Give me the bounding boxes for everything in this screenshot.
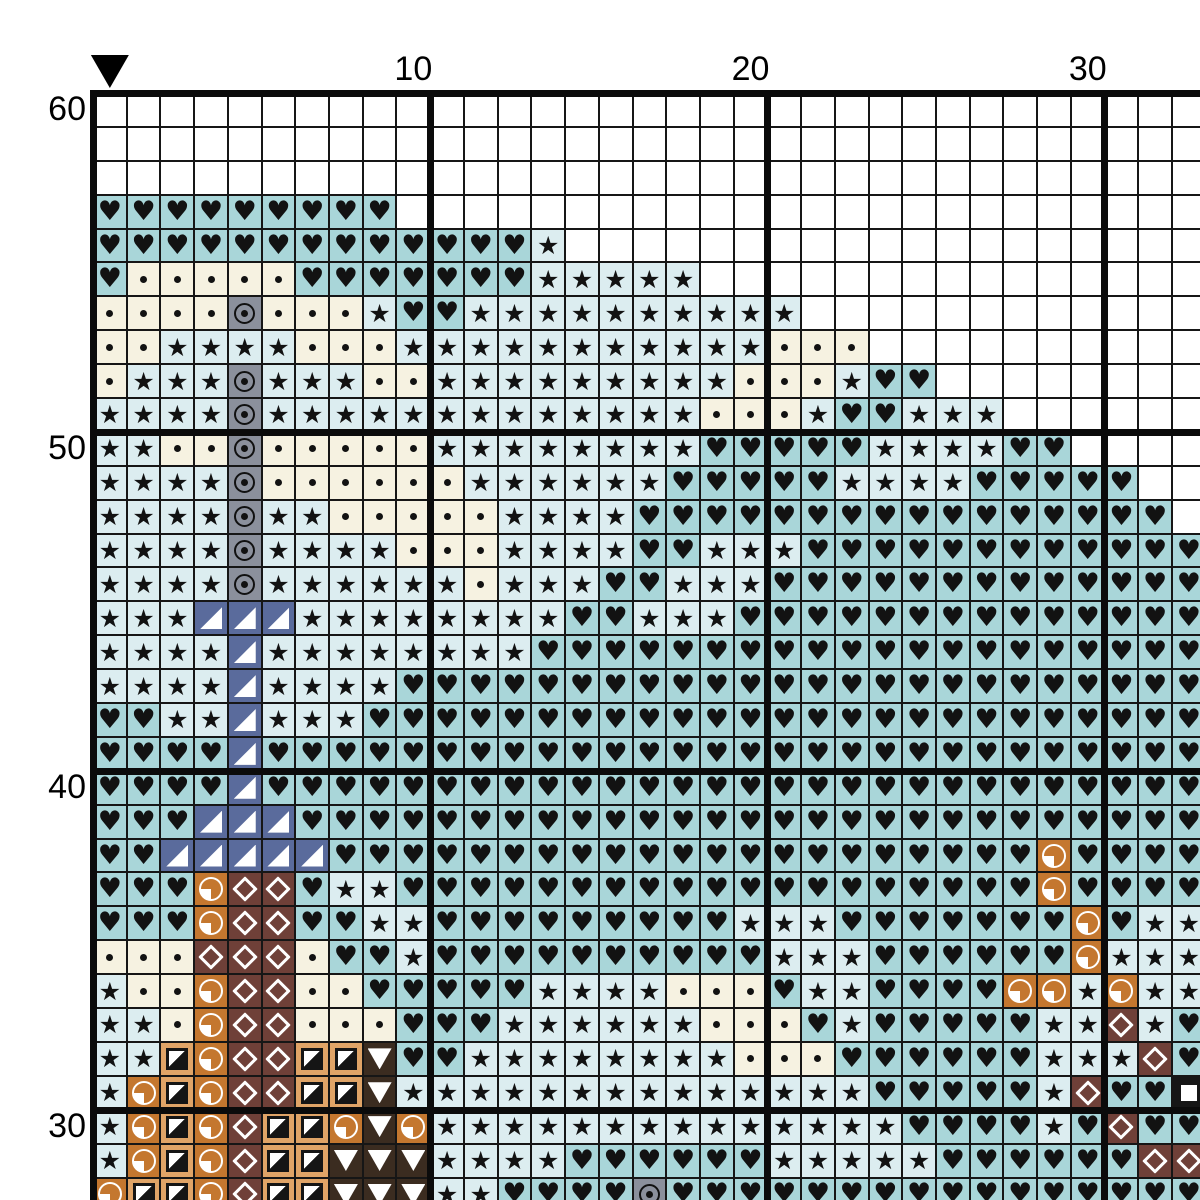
grid-cell-dot [329, 296, 363, 330]
star-icon: ★ [942, 433, 964, 464]
grid-cell-dot [363, 432, 397, 466]
grid-cell-star: ★ [160, 534, 194, 568]
grid-cell-star: ★ [1105, 1042, 1139, 1076]
star-icon: ★ [1043, 1111, 1065, 1142]
heart-icon: ♥ [469, 230, 493, 261]
heart-icon: ♥ [840, 433, 864, 464]
grid-cell-heart: ♥ [801, 567, 835, 601]
grid-cell-dot [464, 567, 498, 601]
star-icon: ★ [672, 433, 694, 464]
heart-icon: ♥ [974, 1077, 998, 1108]
grid-cell-star: ★ [464, 296, 498, 330]
quarter-circle-icon [1008, 979, 1032, 1003]
heart-icon: ♥ [1076, 535, 1100, 566]
grid-cell-diamond [262, 872, 296, 906]
star-icon: ★ [368, 603, 390, 634]
heart-icon: ♥ [570, 1145, 594, 1176]
dot-icon [174, 1021, 181, 1028]
star-icon: ★ [200, 467, 222, 498]
star-icon: ★ [436, 366, 458, 397]
heart-icon: ♥ [941, 704, 965, 735]
grid-cell-quarter-circle [194, 1144, 228, 1178]
dot-icon [713, 988, 720, 995]
heart-icon: ♥ [671, 840, 695, 871]
diamond-icon [232, 1080, 257, 1105]
grid-cell-empty [329, 127, 363, 161]
heart-icon: ♥ [1177, 873, 1200, 904]
grid-cell-star: ★ [396, 906, 430, 940]
grid-cell-heart: ♥ [599, 669, 633, 703]
grid-cell-heart: ♥ [531, 635, 565, 669]
grid-cell-diamond [228, 1076, 262, 1110]
heart-icon: ♥ [974, 467, 998, 498]
grid-cell-star: ★ [127, 500, 161, 534]
grid-cell-circled-dot [228, 432, 262, 466]
grid-cell-heart: ♥ [1172, 805, 1200, 839]
grid-cell-triangle-corner [228, 601, 262, 635]
grid-cell-heart: ♥ [902, 906, 936, 940]
grid-cell-heart: ♥ [936, 703, 970, 737]
heart-icon: ♥ [469, 840, 493, 871]
dot-icon [309, 954, 316, 961]
heart-icon: ♥ [772, 1178, 796, 1200]
grid-cell-heart: ♥ [1003, 1144, 1037, 1178]
grid-cell-star: ★ [531, 1076, 565, 1110]
grid-cell-empty [565, 93, 599, 127]
grid-cell-diamond [262, 1076, 296, 1110]
grid-cell-star: ★ [396, 940, 430, 974]
heart-icon: ♥ [1008, 602, 1032, 633]
grid-cell-half-square [329, 1076, 363, 1110]
heart-icon: ♥ [334, 840, 358, 871]
star-icon: ★ [672, 603, 694, 634]
dot-icon [208, 310, 215, 317]
grid-cell-star: ★ [329, 398, 363, 432]
star-icon: ★ [267, 501, 289, 532]
grid-cell-star: ★ [498, 330, 532, 364]
grid-cell-empty [160, 127, 194, 161]
heart-icon: ♥ [604, 806, 628, 837]
grid-cell-dot [363, 500, 397, 534]
grid-cell-half-square [295, 1110, 329, 1144]
heart-icon: ♥ [435, 941, 459, 972]
grid-cell-heart: ♥ [1003, 500, 1037, 534]
grid-cell-heart: ♥ [1037, 669, 1071, 703]
heart-icon: ♥ [435, 873, 459, 904]
triangle-corner-icon [234, 675, 256, 697]
grid-cell-heart: ♥ [936, 839, 970, 873]
star-icon: ★ [99, 569, 121, 600]
grid-cell-heart: ♥ [531, 703, 565, 737]
grid-cell-heart: ♥ [902, 703, 936, 737]
grid-cell-star: ★ [464, 1110, 498, 1144]
star-icon: ★ [672, 1077, 694, 1108]
heart-icon: ♥ [469, 263, 493, 294]
grid-cell-triangle-corner [160, 839, 194, 873]
grid-cell-heart: ♥ [902, 500, 936, 534]
heart-icon: ♥ [873, 975, 897, 1006]
heart-icon: ♥ [772, 873, 796, 904]
grid-cell-empty [464, 195, 498, 229]
heart-icon: ♥ [165, 230, 189, 261]
grid-cell-star: ★ [160, 500, 194, 534]
grid-cell-star: ★ [93, 1110, 127, 1144]
grid-cell-empty [396, 127, 430, 161]
grid-cell-empty [767, 127, 801, 161]
grid-cell-half-square [127, 1178, 161, 1200]
grid-cell-triangle-corner [295, 839, 329, 873]
star-icon: ★ [604, 366, 626, 397]
grid-cell-heart: ♥ [936, 500, 970, 534]
grid-cell-heart: ♥ [396, 1008, 430, 1042]
star-icon: ★ [840, 976, 862, 1007]
heart-icon: ♥ [1177, 1111, 1200, 1142]
heart-icon: ♥ [1008, 467, 1032, 498]
star-icon: ★ [503, 501, 525, 532]
dot-icon [713, 411, 720, 418]
grid-cell-heart: ♥ [498, 974, 532, 1008]
grid-cell-heart: ♥ [1105, 1178, 1139, 1200]
row-label-30: 30 [14, 1107, 86, 1146]
grid-cell-empty [1172, 262, 1200, 296]
grid-cell-heart: ♥ [565, 805, 599, 839]
grid-cell-star: ★ [194, 330, 228, 364]
grid-cell-heart: ♥ [869, 1076, 903, 1110]
heart-icon: ♥ [502, 840, 526, 871]
star-icon: ★ [975, 399, 997, 430]
grid-cell-star: ★ [599, 364, 633, 398]
grid-cell-empty [700, 262, 734, 296]
star-icon: ★ [200, 535, 222, 566]
grid-cell-heart: ♥ [1105, 872, 1139, 906]
star-icon: ★ [706, 603, 728, 634]
heart-icon: ♥ [1008, 907, 1032, 938]
grid-cell-heart: ♥ [633, 805, 667, 839]
heart-icon: ♥ [772, 602, 796, 633]
grid-cell-dot [801, 364, 835, 398]
grid-cell-heart: ♥ [700, 432, 734, 466]
heart-icon: ♥ [772, 975, 796, 1006]
star-icon: ★ [638, 264, 660, 295]
heart-icon: ♥ [873, 1043, 897, 1074]
grid-cell-heart: ♥ [835, 500, 869, 534]
dot-icon [680, 988, 687, 995]
grid-cell-star: ★ [599, 398, 633, 432]
dot-icon [477, 581, 484, 588]
dot-icon [275, 310, 282, 317]
quarter-circle-icon [1076, 911, 1100, 935]
grid-cell-heart: ♥ [160, 906, 194, 940]
grid-cell-empty [1138, 93, 1172, 127]
heart-icon: ♥ [941, 1009, 965, 1040]
grid-cell-heart: ♥ [869, 940, 903, 974]
grid-cell-heart: ♥ [801, 601, 835, 635]
grid-cell-star: ★ [599, 296, 633, 330]
grid-cell-heart: ♥ [869, 1042, 903, 1076]
grid-cell-empty [1003, 127, 1037, 161]
star-icon: ★ [672, 332, 694, 363]
heart-icon: ♥ [469, 670, 493, 701]
grid-cell-diamond [228, 1144, 262, 1178]
grid-cell-dot [295, 432, 329, 466]
grid-cell-star: ★ [633, 1110, 667, 1144]
heart-icon: ♥ [1008, 1178, 1032, 1200]
heart-icon: ♥ [401, 840, 425, 871]
grid-cell-empty [835, 296, 869, 330]
star-icon: ★ [436, 603, 458, 634]
heart-icon: ♥ [840, 602, 864, 633]
star-icon: ★ [368, 298, 390, 329]
heart-icon: ♥ [1008, 941, 1032, 972]
star-icon: ★ [1076, 976, 1098, 1007]
grid-cell-dot [194, 432, 228, 466]
grid-cell-quarter-circle [194, 1076, 228, 1110]
grid-cell-heart: ♥ [396, 669, 430, 703]
grid-cell-heart: ♥ [1138, 601, 1172, 635]
grid-cell-star: ★ [666, 262, 700, 296]
heart-icon: ♥ [941, 975, 965, 1006]
grid-cell-star: ★ [363, 534, 397, 568]
grid-cell-heart: ♥ [936, 1110, 970, 1144]
heart-icon: ♥ [1143, 670, 1167, 701]
quarter-circle-icon [199, 1182, 223, 1200]
grid-cell-heart: ♥ [599, 940, 633, 974]
heart-icon: ♥ [1143, 1178, 1167, 1200]
heart-icon: ♥ [806, 704, 830, 735]
heart-icon: ♥ [907, 1178, 931, 1200]
grid-cell-heart: ♥ [565, 737, 599, 771]
heart-icon: ♥ [637, 907, 661, 938]
dot-icon [410, 513, 417, 520]
grid-cell-heart: ♥ [396, 974, 430, 1008]
heart-icon: ♥ [1109, 840, 1133, 871]
grid-cell-dot [228, 262, 262, 296]
grid-cell-heart: ♥ [599, 737, 633, 771]
heart-icon: ♥ [502, 772, 526, 803]
heart-icon: ♥ [334, 230, 358, 261]
grid-cell-heart: ♥ [767, 805, 801, 839]
grid-cell-empty [767, 262, 801, 296]
grid-cell-heart: ♥ [1003, 466, 1037, 500]
grid-cell-star: ★ [498, 567, 532, 601]
heart-icon: ♥ [907, 907, 931, 938]
heart-icon: ♥ [974, 670, 998, 701]
diamond-icon [266, 1080, 291, 1105]
heart-icon: ♥ [536, 806, 560, 837]
star-icon: ★ [402, 1077, 424, 1108]
grid-cell-heart: ♥ [599, 839, 633, 873]
grid-cell-empty [1003, 364, 1037, 398]
grid-cell-star: ★ [767, 1110, 801, 1144]
dot-icon [814, 1055, 821, 1062]
heart-icon: ♥ [401, 263, 425, 294]
grid-cell-heart: ♥ [531, 737, 565, 771]
dot-icon [781, 1021, 788, 1028]
dot-icon [342, 988, 349, 995]
grid-cell-dot [93, 940, 127, 974]
grid-cell-empty [194, 93, 228, 127]
grid-cell-quarter-circle [127, 1110, 161, 1144]
grid-cell-empty [767, 161, 801, 195]
star-icon: ★ [503, 1043, 525, 1074]
heart-icon: ♥ [637, 704, 661, 735]
star-icon: ★ [132, 501, 154, 532]
star-icon: ★ [638, 298, 660, 329]
diamond-icon [266, 911, 291, 936]
heart-icon: ♥ [435, 297, 459, 328]
heart-icon: ♥ [738, 501, 762, 532]
grid-cell-empty [1037, 296, 1071, 330]
grid-cell-star: ★ [430, 398, 464, 432]
grid-cell-empty [1138, 432, 1172, 466]
grid-cell-dot [430, 466, 464, 500]
grid-cell-empty [835, 229, 869, 263]
grid-cell-dot [194, 262, 228, 296]
grid-cell-heart: ♥ [1138, 737, 1172, 771]
heart-icon: ♥ [1177, 535, 1200, 566]
diamond-icon [266, 944, 291, 969]
grid-cell-star: ★ [531, 601, 565, 635]
grid-cell-heart: ♥ [666, 737, 700, 771]
heart-icon: ♥ [401, 704, 425, 735]
star-icon: ★ [537, 332, 559, 363]
heart-icon: ♥ [165, 738, 189, 769]
half-square-icon [133, 1183, 155, 1200]
star-icon: ★ [503, 1077, 525, 1108]
grid-cell-star: ★ [734, 296, 768, 330]
star-icon: ★ [773, 535, 795, 566]
grid-cell-empty [1071, 398, 1105, 432]
grid-cell-heart: ♥ [329, 262, 363, 296]
grid-cell-empty [835, 195, 869, 229]
grid-cell-triangle-corner [262, 805, 296, 839]
grid-cell-diamond [262, 974, 296, 1008]
triangle-down-icon [368, 1116, 392, 1137]
grid-cell-empty [498, 93, 532, 127]
grid-cell-diamond [262, 1042, 296, 1076]
grid-cell-empty [936, 161, 970, 195]
grid-cell-empty [700, 229, 734, 263]
star-icon: ★ [132, 1043, 154, 1074]
grid-cell-star: ★ [599, 974, 633, 1008]
grid-cell-heart: ♥ [464, 262, 498, 296]
grid-cell-star: ★ [194, 466, 228, 500]
heart-icon: ♥ [941, 1145, 965, 1176]
star-icon: ★ [672, 298, 694, 329]
quarter-circle-icon [98, 1182, 122, 1200]
grid-cell-star: ★ [666, 1076, 700, 1110]
grid-cell-heart: ♥ [1138, 839, 1172, 873]
grid-cell-heart: ♥ [531, 805, 565, 839]
grid-cell-empty [1138, 161, 1172, 195]
grid-cell-heart: ♥ [599, 635, 633, 669]
heart-icon: ♥ [941, 1043, 965, 1074]
star-icon: ★ [706, 332, 728, 363]
heart-icon: ♥ [300, 230, 324, 261]
grid-cell-heart: ♥ [734, 601, 768, 635]
grid-cell-heart: ♥ [902, 1008, 936, 1042]
heart-icon: ♥ [772, 840, 796, 871]
heart-icon: ♥ [738, 636, 762, 667]
grid-cell-star: ★ [565, 1076, 599, 1110]
grid-cell-empty [767, 229, 801, 263]
heart-icon: ♥ [974, 873, 998, 904]
heart-icon: ♥ [907, 535, 931, 566]
grid-cell-heart: ♥ [869, 1008, 903, 1042]
grid-cell-empty [1071, 262, 1105, 296]
grid-cell-heart: ♥ [329, 805, 363, 839]
heart-icon: ♥ [334, 196, 358, 227]
grid-cell-heart: ♥ [801, 669, 835, 703]
grid-cell-heart: ♥ [767, 771, 801, 805]
star-icon: ★ [672, 1111, 694, 1142]
heart-icon: ♥ [604, 704, 628, 735]
grid-cell-star: ★ [160, 567, 194, 601]
dot-icon [106, 954, 113, 961]
grid-cell-star: ★ [127, 1042, 161, 1076]
grid-cell-empty [363, 161, 397, 195]
grid-cell-heart: ♥ [396, 805, 430, 839]
heart-icon: ♥ [1109, 670, 1133, 701]
star-icon: ★ [335, 671, 357, 702]
heart-icon: ♥ [1109, 806, 1133, 837]
heart-icon: ♥ [300, 772, 324, 803]
grid-cell-heart: ♥ [801, 805, 835, 839]
grid-cell-heart: ♥ [1105, 567, 1139, 601]
grid-cell-heart: ♥ [700, 635, 734, 669]
grid-cell-heart: ♥ [902, 805, 936, 839]
dot-icon [309, 344, 316, 351]
grid-cell-heart: ♥ [633, 737, 667, 771]
triangle-down-icon [368, 1082, 392, 1103]
star-icon: ★ [99, 671, 121, 702]
grid-cell-star: ★ [430, 635, 464, 669]
grid-cell-star: ★ [127, 1008, 161, 1042]
star-icon: ★ [706, 535, 728, 566]
grid-cell-heart: ♥ [666, 1178, 700, 1200]
grid-cell-star: ★ [531, 364, 565, 398]
grid-cell-star: ★ [666, 601, 700, 635]
diamond-icon [232, 1114, 257, 1139]
heart-icon: ♥ [469, 806, 493, 837]
grid-cell-heart: ♥ [1105, 1144, 1139, 1178]
grid-cell-dot [127, 330, 161, 364]
star-icon: ★ [132, 671, 154, 702]
star-icon: ★ [402, 637, 424, 668]
grid-cell-empty [531, 195, 565, 229]
grid-cell-heart: ♥ [1003, 771, 1037, 805]
star-icon: ★ [773, 942, 795, 973]
star-icon: ★ [706, 1111, 728, 1142]
grid-cell-dot [93, 364, 127, 398]
heart-icon: ♥ [469, 975, 493, 1006]
heart-icon: ♥ [368, 806, 392, 837]
star-icon: ★ [672, 399, 694, 430]
grid-cell-heart: ♥ [1172, 771, 1200, 805]
quarter-circle-icon [1042, 979, 1066, 1003]
dot-icon [208, 276, 215, 283]
heart-icon: ♥ [941, 602, 965, 633]
star-icon: ★ [99, 1043, 121, 1074]
grid-cell-star: ★ [531, 432, 565, 466]
grid-cell-star: ★ [262, 669, 296, 703]
grid-cell-heart: ♥ [767, 669, 801, 703]
heart-icon: ♥ [1143, 568, 1167, 599]
star-icon: ★ [470, 1111, 492, 1142]
heart-icon: ♥ [705, 772, 729, 803]
star-icon: ★ [739, 1077, 761, 1108]
grid-cell-star: ★ [363, 669, 397, 703]
